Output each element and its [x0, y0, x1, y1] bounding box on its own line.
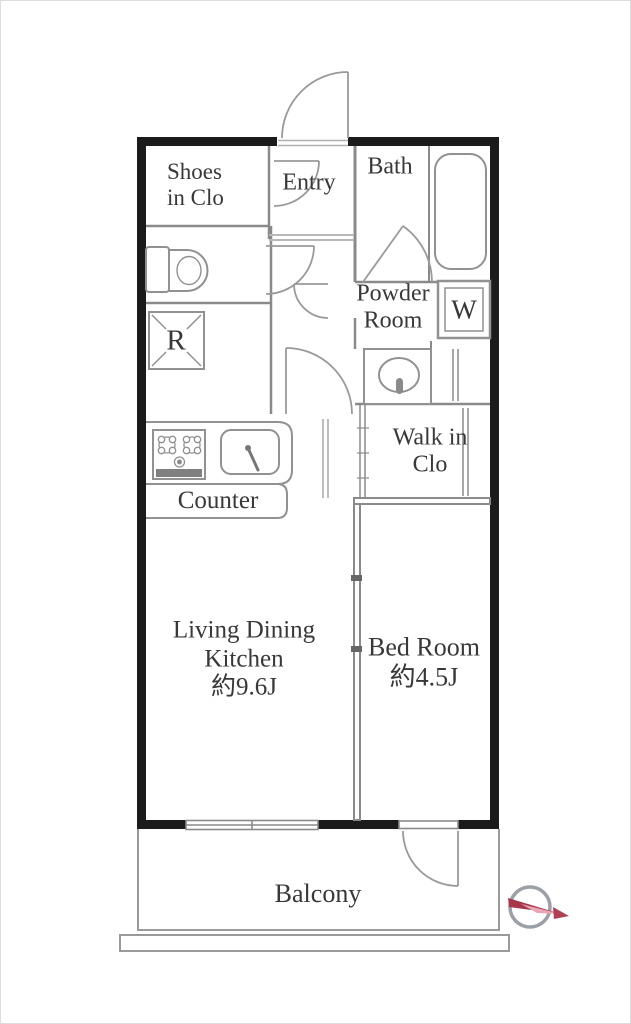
compass-icon — [508, 887, 569, 927]
ldk-label: Living Dining Kitchen 約9.6J — [173, 616, 315, 702]
washing-machine-label: W — [451, 295, 476, 326]
floorplan-page: Shoes in Clo Entry Bath Powder Room W R … — [0, 0, 631, 1024]
toilet-door-swing — [266, 246, 314, 294]
counter-label: Counter — [178, 487, 259, 516]
washbasin — [364, 349, 431, 404]
kitchen-sink — [221, 430, 279, 474]
hall-kitchen-edge — [323, 419, 328, 498]
bedroom-label: Bed Room 約4.5J — [368, 632, 480, 691]
toilet — [146, 247, 208, 292]
entry-opening — [278, 141, 348, 146]
walk-in-closet-label: Walk in Clo — [393, 425, 468, 480]
ldk-door-swing — [286, 348, 352, 414]
walk-in-closet-label-line1: Walk in — [393, 425, 468, 452]
wall-top-left — [137, 137, 277, 146]
shoes-closet-label: Shoes in Clo — [167, 159, 224, 211]
ldk-bedroom-wall — [354, 504, 360, 820]
wic-folding-door — [357, 404, 369, 498]
ldk-window — [186, 821, 318, 830]
walk-in-closet-label-line2: Clo — [393, 452, 468, 479]
ldk-label-line1: Living Dining — [173, 616, 315, 645]
bedroom-balcony-opening — [399, 821, 458, 829]
bath-door-swing — [363, 226, 432, 282]
balcony-door-swing — [403, 831, 458, 886]
wall-bottom-1 — [137, 820, 190, 829]
powder-room-label-line1: Powder — [356, 281, 429, 308]
balcony-base-plate — [120, 935, 509, 951]
powder-room-door-swing — [294, 284, 328, 318]
ldk-area-label: 約9.6J — [173, 673, 315, 702]
wall-left — [137, 137, 146, 829]
refrigerator-label: R — [166, 324, 185, 357]
floorplan-drawing — [1, 1, 631, 1024]
ldk-label-line2: Kitchen — [173, 645, 315, 674]
bath-label: Bath — [367, 153, 412, 180]
powder-room-label: Powder Room — [356, 281, 429, 336]
balcony-label: Balcony — [275, 879, 362, 909]
shoes-closet-label-line1: Shoes — [167, 159, 224, 185]
entry-door-swing — [282, 72, 348, 138]
bedroom-area-label: 約4.5J — [368, 662, 480, 692]
shoes-closet-label-line2: in Clo — [167, 185, 224, 211]
wall-top-right — [348, 137, 499, 146]
entry-label: Entry — [282, 169, 335, 196]
powder-room-label-line2: Room — [356, 308, 429, 335]
wall-right — [490, 137, 499, 829]
gas-stove — [153, 430, 205, 479]
wic-bedroom-wall — [354, 498, 490, 504]
entry-step-line — [269, 235, 354, 240]
wall-bottom-3 — [458, 820, 499, 829]
wall-bottom-2 — [314, 820, 399, 829]
bedroom-label-line1: Bed Room — [368, 632, 480, 662]
bathtub — [435, 154, 486, 269]
